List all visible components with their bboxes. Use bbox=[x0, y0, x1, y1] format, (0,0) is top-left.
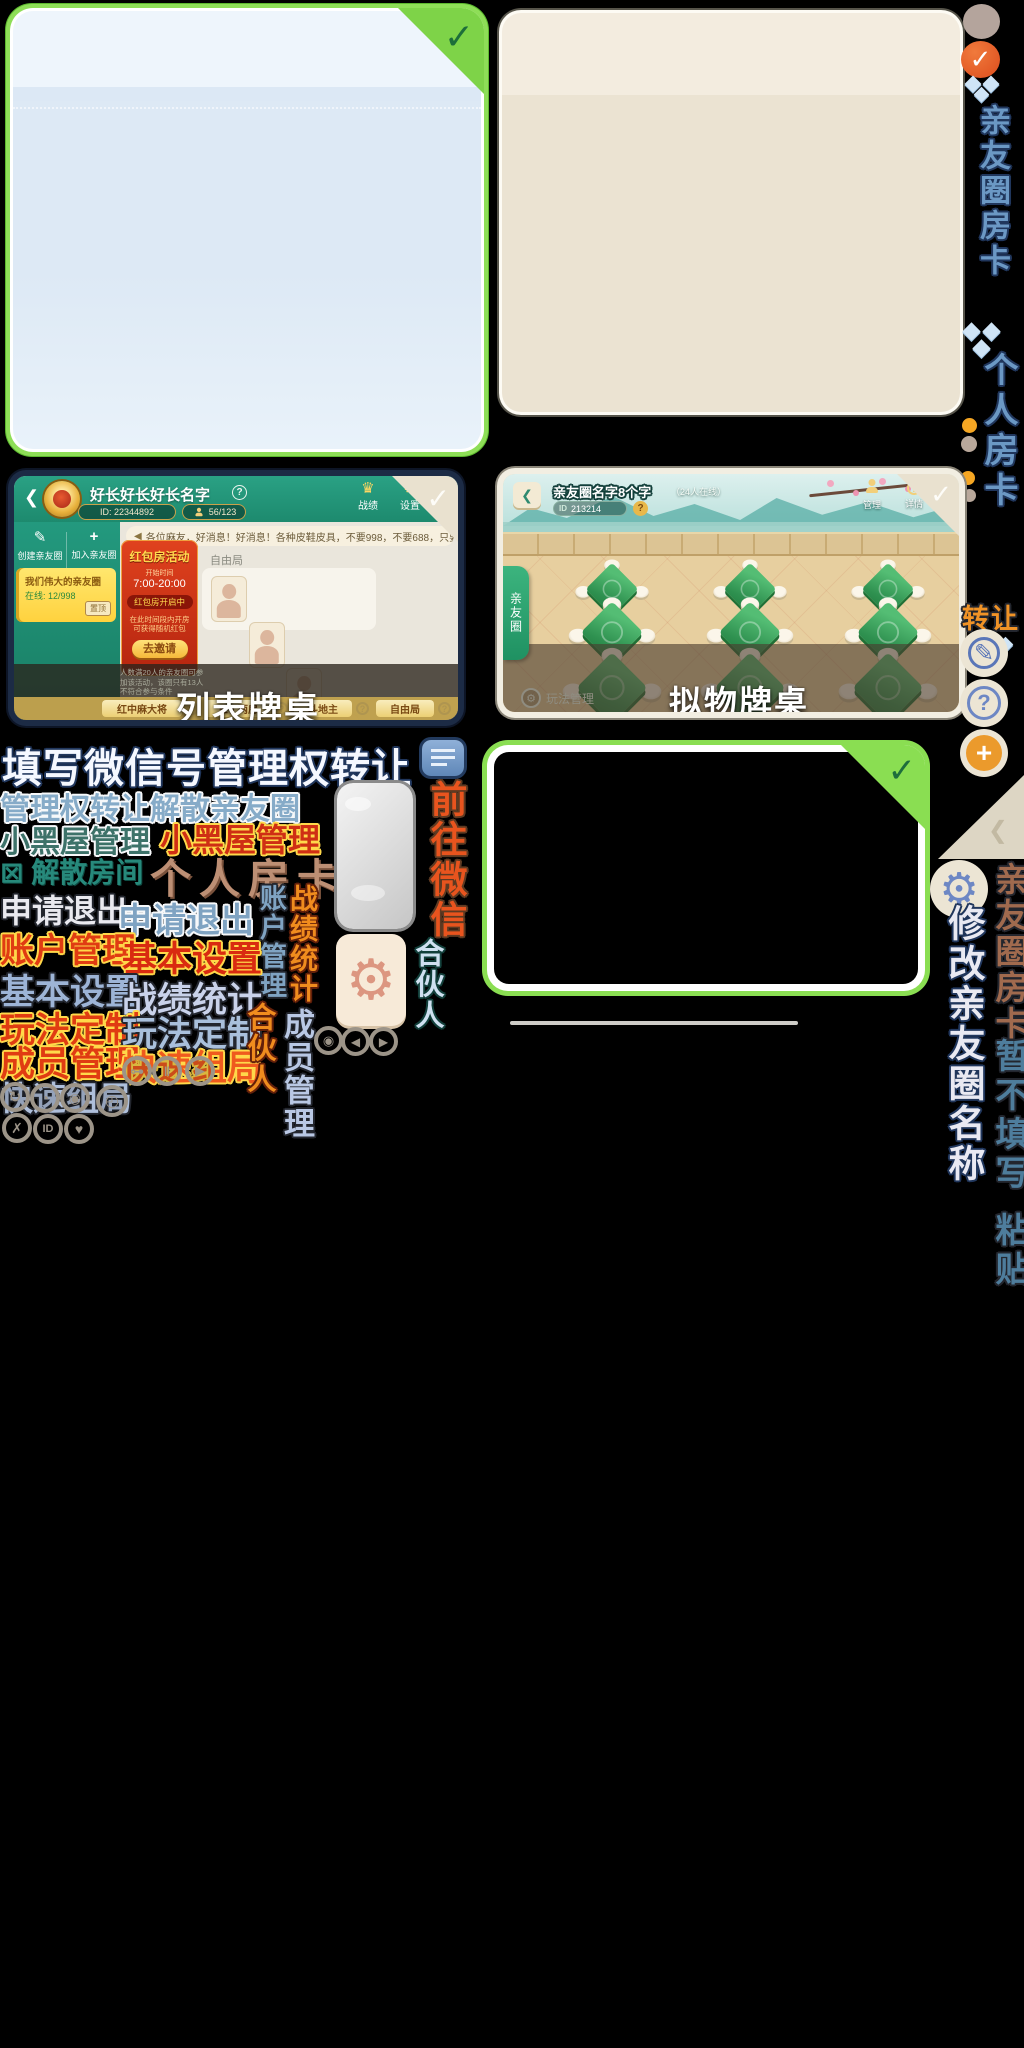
list-room-title: 好长好长好长名字 bbox=[90, 484, 210, 505]
circle-card-title: 我们伟大的亲友圈 bbox=[25, 574, 101, 588]
eye-stamp-icon: ◉ bbox=[60, 1083, 90, 1113]
help-icon[interactable]: ? bbox=[232, 485, 247, 500]
id-value: 213214 bbox=[571, 504, 601, 514]
wood-wall bbox=[503, 532, 959, 556]
friend-circle-side-tab[interactable]: 亲友圈 bbox=[503, 566, 529, 660]
caption-sim-room: 拟物牌桌 bbox=[669, 676, 809, 712]
gray-avatar-placeholder bbox=[337, 783, 413, 929]
play-stamp-icon: ▶ bbox=[369, 1027, 398, 1056]
banner-status-pill: 红包房开启中 bbox=[127, 595, 193, 609]
back-icon: ❮ bbox=[521, 487, 533, 504]
sim-room-subtitle: （24人在线） bbox=[671, 485, 726, 498]
blue-card-selected[interactable]: ✓ bbox=[6, 4, 488, 456]
chevron-left-icon: ❮ bbox=[988, 816, 1008, 845]
question-icon: ? bbox=[967, 686, 1001, 720]
rail-label-friend-card: 亲友圈房卡 bbox=[970, 104, 1015, 279]
circle-card[interactable]: 我们伟大的亲友圈 在线: 12/998 置顶 bbox=[16, 568, 116, 622]
redpacket-banner[interactable]: 红包房活动 开始时间 7:00-20:00 红包房开启中 在此时间段内开房可获得… bbox=[121, 540, 198, 676]
rail-label-paste: 粘贴 bbox=[985, 1212, 1024, 1290]
add-circle-button[interactable]: + bbox=[960, 729, 1008, 777]
sprite-member-vertical-blue: 成员管理 bbox=[274, 1008, 319, 1140]
circle-online-count: 在线: 12/998 bbox=[25, 589, 76, 602]
sprite-sheet-canvas: ✓ ✓ 亲友圈房卡 个人房卡 ❮ 好长好长好长名字 ? bbox=[0, 0, 1024, 2048]
check-icon: ✓ bbox=[427, 482, 450, 515]
screenshot-sim-room[interactable]: ❮ 亲友圈名字8个字 （24人在线） ID 213214 ? 管理 ? 详情 ♛… bbox=[497, 468, 965, 718]
fold-triangle[interactable]: ❮ bbox=[938, 775, 1024, 859]
manage-play-button[interactable]: ⚙ 玩法管理 bbox=[521, 688, 594, 708]
dissolve-icon: ⊠ bbox=[0, 857, 23, 888]
back-icon[interactable]: ❮ bbox=[24, 487, 39, 508]
sim-id-pill: ID 213214 bbox=[553, 501, 627, 516]
member-count: 56/123 bbox=[209, 507, 237, 517]
blue-card-texture bbox=[13, 107, 481, 109]
tab-help-icon[interactable]: ? bbox=[438, 702, 451, 715]
manage-button[interactable]: 管理 bbox=[855, 479, 889, 511]
sprite-stats-vertical-orange: 战绩统计 bbox=[282, 884, 322, 1004]
clipboard-icon[interactable] bbox=[422, 740, 464, 776]
rail-label-rename: 修改亲友圈名称 bbox=[936, 904, 990, 1184]
trophy-icon: ♛ bbox=[350, 481, 386, 497]
sim-room-title: 亲友圈名字8个字 bbox=[553, 482, 651, 501]
invite-button[interactable]: 去邀请 bbox=[132, 640, 188, 658]
create-circle-button[interactable]: ✎ 创建亲友圈 bbox=[14, 528, 66, 562]
banner-title: 红包房活动 bbox=[121, 548, 198, 565]
blue-card-body bbox=[13, 11, 481, 449]
tab-hongzhong[interactable]: 红中麻大将 bbox=[102, 700, 182, 717]
stats-button[interactable]: ♛ 战绩 bbox=[350, 481, 386, 512]
banner-status: 红包房开启中 bbox=[134, 596, 185, 608]
beige-card-body bbox=[502, 13, 960, 412]
manage-play-label: 玩法管理 bbox=[546, 690, 594, 707]
check-icon: ✓ bbox=[444, 16, 474, 58]
tab-ziyouju[interactable]: 自由局 bbox=[376, 700, 434, 717]
room-id-pill: ID: 22344892 bbox=[78, 504, 176, 520]
tan-dot bbox=[961, 436, 977, 452]
back-button[interactable]: ❮ bbox=[513, 482, 541, 508]
sprite-partner-vertical-blue: 合伙人 bbox=[406, 938, 448, 1031]
banner-desc: 在此时间段内开房可获得随机红包 bbox=[127, 615, 193, 633]
free-mode-label: 自由局 bbox=[210, 552, 243, 568]
manage-label: 管理 bbox=[855, 498, 889, 511]
banner-time-label: 开始时间 bbox=[121, 568, 198, 578]
eye-stamp-icon: ◉ bbox=[314, 1026, 343, 1055]
rail-label-personal-card: 个人房卡 bbox=[974, 352, 1023, 512]
sparkle-diamonds-icon bbox=[966, 78, 1000, 102]
plus-icon: + bbox=[966, 735, 1002, 771]
confirm-check-icon[interactable]: ✓ bbox=[961, 41, 1000, 78]
pause-stamp-icon: ‖ bbox=[152, 1056, 182, 1086]
sprite-goto-wechat: 前往微信 bbox=[418, 780, 472, 940]
edit-circle-button[interactable]: ✎ bbox=[960, 629, 1008, 677]
gear-icon: ⚙ bbox=[346, 947, 396, 1013]
rail-label-no-fill: 暂不填写 bbox=[985, 1038, 1024, 1194]
tan-circle-icon[interactable] bbox=[963, 4, 1000, 39]
rail-label-friend-card-brown: 亲友圈房卡 bbox=[985, 862, 1024, 1042]
stats-label: 战绩 bbox=[350, 497, 386, 512]
pencil-icon: ✎ bbox=[968, 637, 1000, 669]
play-stamp-icon: ▶ bbox=[185, 1056, 215, 1086]
person-icon bbox=[195, 508, 203, 516]
create-label: 创建亲友圈 bbox=[14, 549, 66, 562]
check-icon: ✓ bbox=[888, 751, 917, 791]
gear-stamp-icon: ⚙ bbox=[521, 688, 541, 708]
check-icon: ✓ bbox=[930, 479, 952, 510]
plus-icon: + bbox=[68, 528, 120, 545]
side-tab-label: 亲友圈 bbox=[508, 592, 525, 634]
pie-stamp-icon: ◔ bbox=[30, 1083, 60, 1113]
water bbox=[503, 522, 959, 532]
pin-badge[interactable]: 置顶 bbox=[85, 601, 111, 616]
avatar-placeholder bbox=[249, 622, 285, 668]
gear-tile[interactable]: ⚙ bbox=[336, 934, 406, 1026]
sprite-dissolve-room: ⊠ 解散房间 bbox=[0, 851, 143, 891]
beige-card[interactable] bbox=[497, 8, 965, 417]
transparent-center bbox=[494, 752, 918, 984]
green-frame-card-selected[interactable]: ✓ bbox=[482, 740, 930, 996]
circle-badge-logo bbox=[44, 481, 80, 517]
pencil-icon: ✎ bbox=[14, 528, 66, 546]
member-count-pill: 56/123 bbox=[182, 504, 246, 520]
id-stamp-icon: ID bbox=[33, 1114, 63, 1144]
kick-stamp-icon: ✗ bbox=[2, 1113, 32, 1143]
screenshot-list-room[interactable]: ❮ 好长好长好长名字 ? ID: 22344892 56/123 ♛ 战绩 ⚙ … bbox=[8, 470, 464, 726]
banner-time: 7:00-20:00 bbox=[121, 578, 198, 590]
redo-stamp-icon: ↻ bbox=[0, 1082, 30, 1112]
join-label: 加入亲友圈 bbox=[68, 548, 120, 561]
heart-stamp-icon: ♥ bbox=[64, 1114, 94, 1144]
join-circle-button[interactable]: + 加入亲友圈 bbox=[68, 528, 120, 561]
manage-person-icon bbox=[865, 479, 879, 493]
tab-help-icon[interactable]: ? bbox=[356, 702, 369, 715]
divider-line bbox=[510, 1021, 798, 1025]
caption-list-room: 列表牌桌 bbox=[176, 682, 320, 720]
check-icon: ✓ bbox=[970, 44, 992, 75]
id-label: ID bbox=[559, 504, 567, 513]
avatar-placeholder bbox=[211, 576, 247, 622]
room-id-value: ID: 22344892 bbox=[100, 507, 154, 517]
id-help-icon[interactable]: ? bbox=[633, 501, 648, 516]
key-stamp-icon: ⊶ bbox=[122, 1056, 152, 1086]
sound-stamp-icon: ◀ bbox=[341, 1027, 370, 1056]
help-circle-button[interactable]: ? bbox=[960, 679, 1008, 727]
clock-stamp-icon: ◴ bbox=[96, 1085, 128, 1117]
orange-dot bbox=[962, 418, 977, 433]
